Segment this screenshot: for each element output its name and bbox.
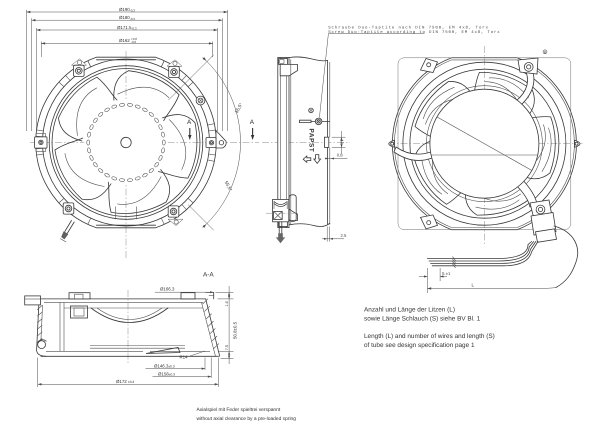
svg-text:Schraube Duo-Taptite nach DIN: Schraube Duo-Taptite nach DIN 7500, EM 4… [328,25,489,30]
svg-text:Length (L) and number of wires: Length (L) and number of wires and lengt… [364,333,495,340]
svg-text:without axial clearance by a p: without axial clearance by a pre-loaded … [197,416,297,422]
svg-text:A: A [187,119,192,126]
svg-text:A-A: A-A [203,272,214,279]
svg-text:A: A [250,119,255,126]
svg-text:Ø190-0.3: Ø190-0.3 [119,7,135,13]
svg-text:Ø166.3: Ø166.3 [160,287,175,292]
svg-text:Anzahl und Länge der Litzen (L: Anzahl und Länge der Litzen (L) [364,306,455,313]
svg-text:S ±1: S ±1 [442,271,451,276]
svg-text:7.5: 7.5 [225,345,229,350]
svg-text:-0.6: -0.6 [131,40,137,44]
svg-text:Axialspiel mit Feder spieltrei: Axialspiel mit Feder spieltrei verspannt [197,407,281,413]
svg-text:1.6: 1.6 [225,301,229,306]
svg-text:PAPST: PAPST [308,129,315,153]
svg-text:10: 10 [339,140,344,145]
svg-text:sowie Länge Schlauch (S) siehe: sowie Länge Schlauch (S) siehe BV Bl. 1 [364,316,481,323]
svg-text:2.5: 2.5 [341,233,347,238]
svg-text:0.8: 0.8 [337,153,343,158]
svg-text:Screw Duo-Taptite according to: Screw Duo-Taptite according to DIN 7500,… [328,30,500,35]
svg-text:50.8±0.5: 50.8±0.5 [233,321,238,339]
svg-text:Ø162: Ø162 [119,38,130,43]
svg-text:Ø171.5-0.3: Ø171.5-0.3 [117,25,137,31]
svg-text:Ø180-0.3: Ø180-0.3 [119,15,135,21]
svg-text:Ø158±0.3: Ø158±0.3 [158,371,175,376]
svg-text:Ø146.3±0.3: Ø146.3±0.3 [154,363,175,368]
svg-text:R14: R14 [180,354,189,359]
svg-text:of tube see design specificati: of tube see design specification page 1 [364,342,475,349]
svg-text:Ø172 ±0.3: Ø172 ±0.3 [116,379,134,384]
